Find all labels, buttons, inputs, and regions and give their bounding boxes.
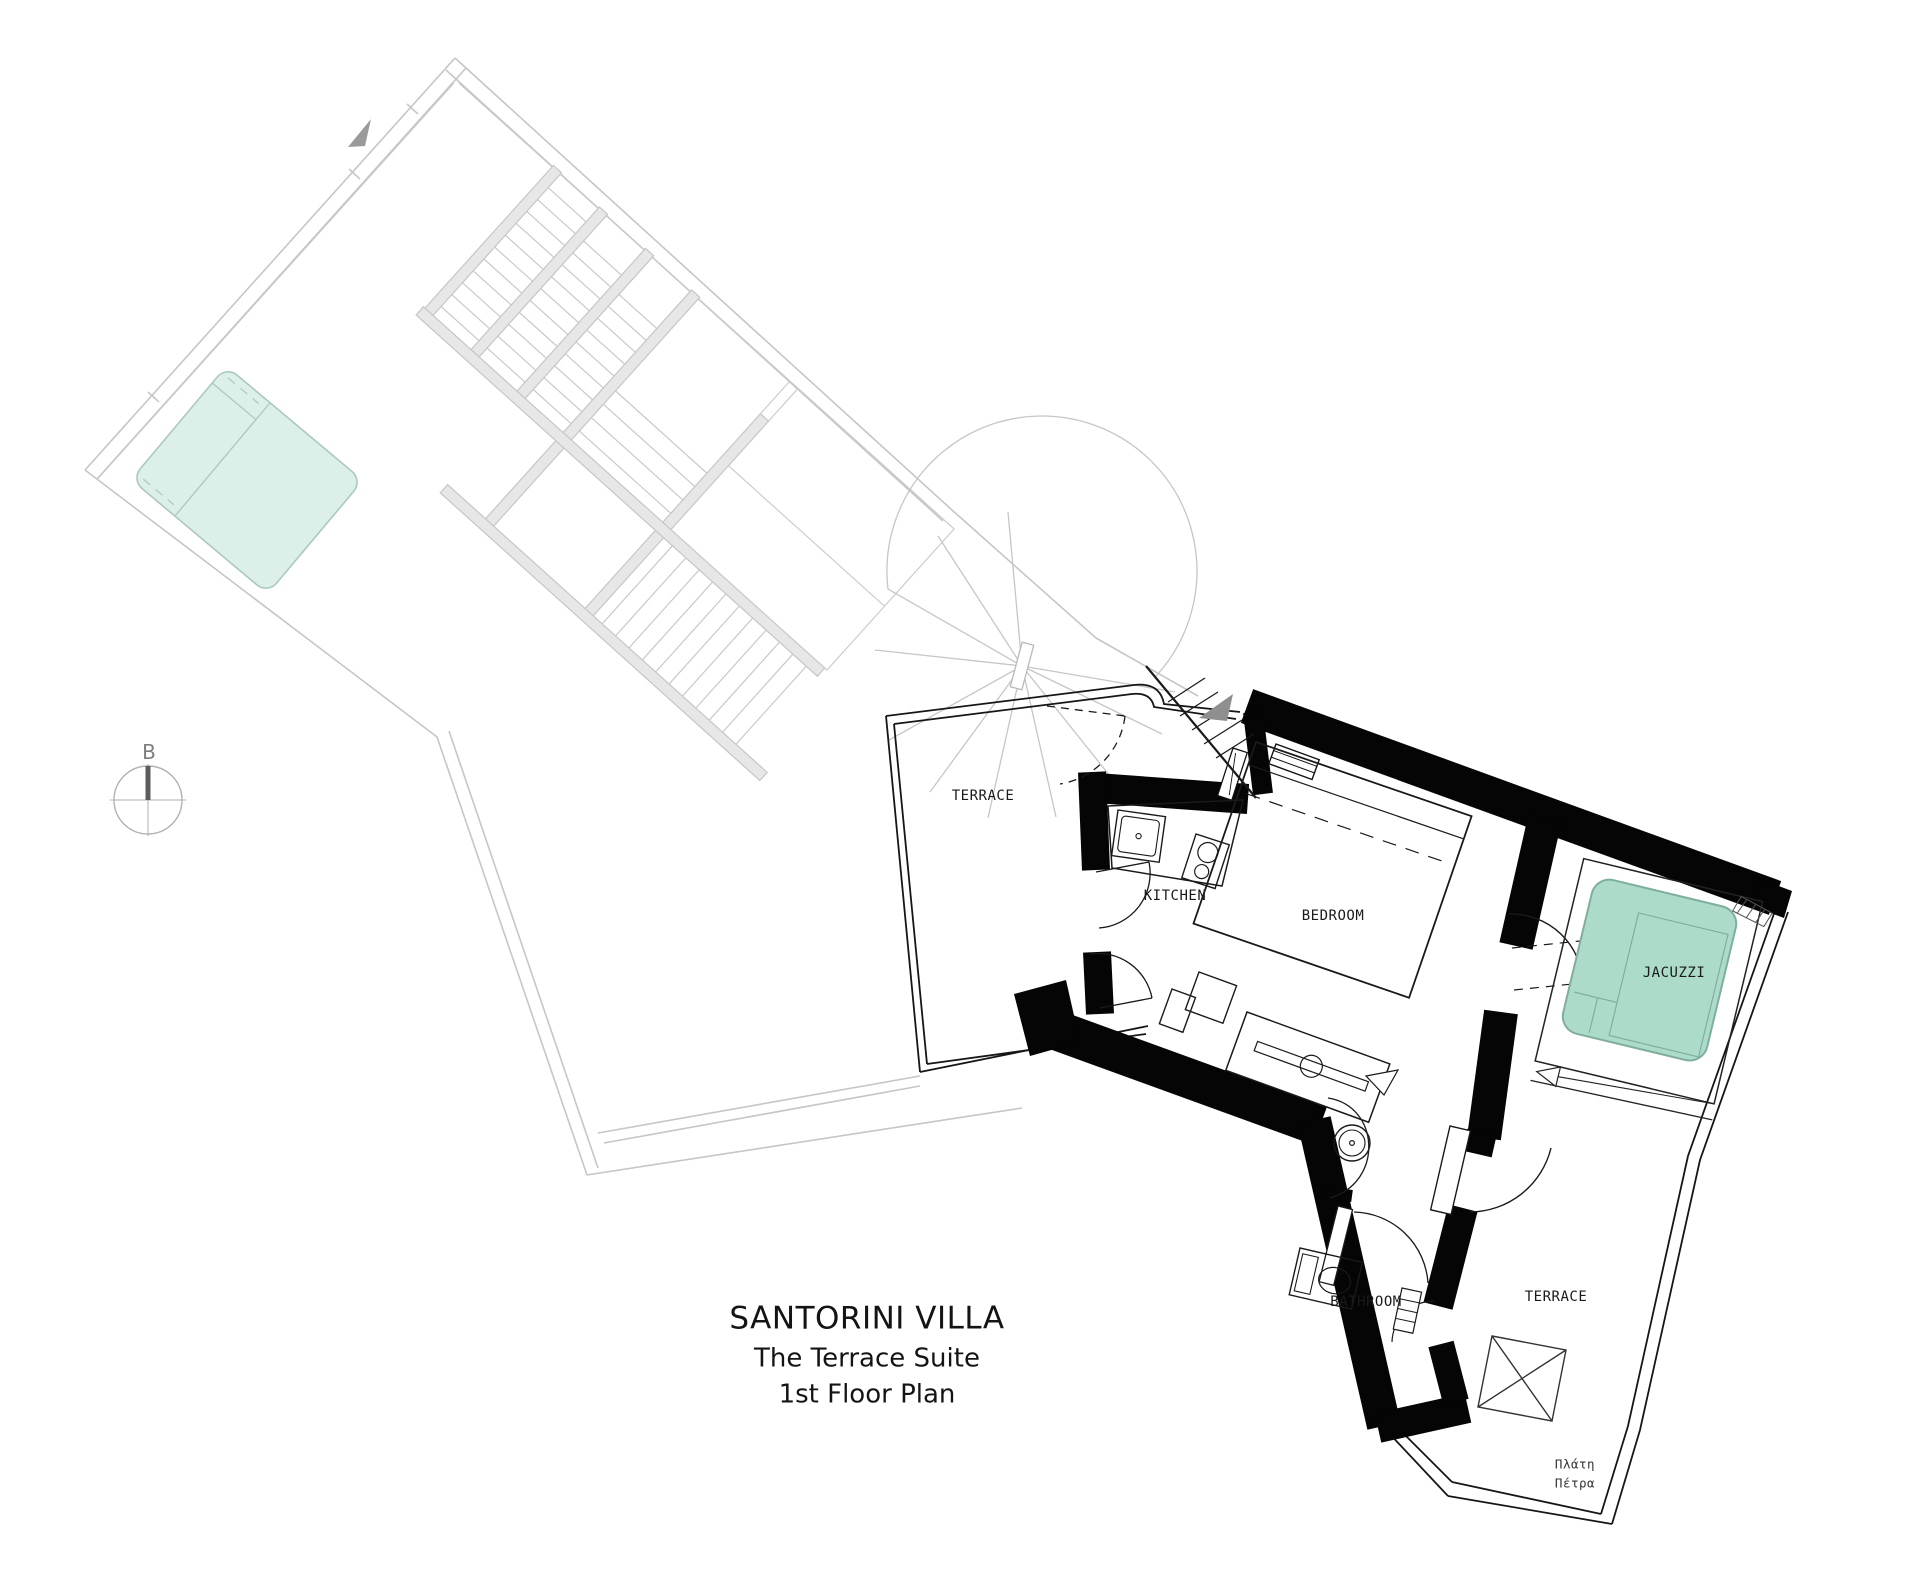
site-note-line2: Πέτρα — [1555, 1474, 1595, 1493]
terrace-skylight — [1478, 1336, 1566, 1421]
plan-subtitle: The Terrace Suite — [729, 1344, 1004, 1374]
plan-floor-label: 1st Floor Plan — [729, 1380, 1004, 1410]
plan-title: SANTORINI VILLA — [729, 1301, 1004, 1337]
room-label-kitchen: KITCHEN — [1144, 888, 1207, 904]
site-note-line1: Πλάτη — [1555, 1455, 1595, 1474]
room-label-bathroom: BATHROOM — [1330, 1294, 1401, 1310]
floor-plan-page: TERRACE KITCHEN BEDROOM JACUZZI BATHROOM… — [0, 0, 1920, 1594]
room-label-terrace-upper: TERRACE — [952, 788, 1015, 804]
room-label-jacuzzi: JACUZZI — [1643, 965, 1706, 981]
compass-label: B — [142, 740, 156, 764]
compass — [110, 764, 186, 836]
room-label-bedroom: BEDROOM — [1302, 908, 1365, 924]
kitchen-counter — [1108, 800, 1243, 889]
site-arrow-icon — [348, 119, 371, 147]
site-note: Πλάτη Πέτρα — [1555, 1455, 1595, 1493]
spiral-staircase — [875, 416, 1197, 818]
pool — [131, 366, 362, 594]
room-label-terrace-lower: TERRACE — [1525, 1289, 1588, 1305]
title-block: SANTORINI VILLA The Terrace Suite 1st Fl… — [729, 1301, 1004, 1410]
kitchen-stove — [1182, 834, 1230, 889]
